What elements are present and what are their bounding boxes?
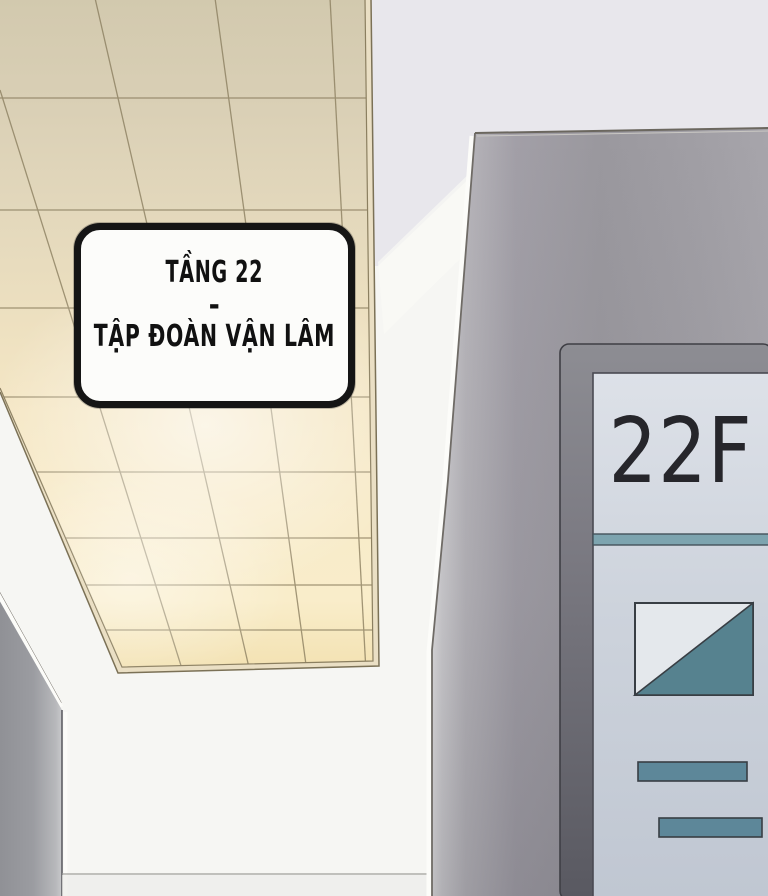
- text-bar-icon: [659, 818, 762, 837]
- caption-separator: -: [209, 295, 220, 316]
- comic-panel: 22F TẦNG 22 - TẬP ĐOÀN VẬN LÂM: [0, 0, 768, 896]
- floor-number-label: 22F: [606, 407, 755, 497]
- caption-company-text: TẬP ĐOÀN VẬN LÂM: [94, 320, 335, 355]
- caption-floor-text: TẦNG 22: [166, 256, 264, 289]
- text-bar-icon: [638, 762, 747, 781]
- caption-box: TẦNG 22 - TẬP ĐOÀN VẬN LÂM: [74, 223, 355, 408]
- floor-pictogram-icon: [635, 603, 753, 695]
- upper-wall-shadow: [371, 0, 768, 133]
- wall-base-strip: [62, 875, 432, 896]
- sign-divider-bar: [593, 534, 768, 545]
